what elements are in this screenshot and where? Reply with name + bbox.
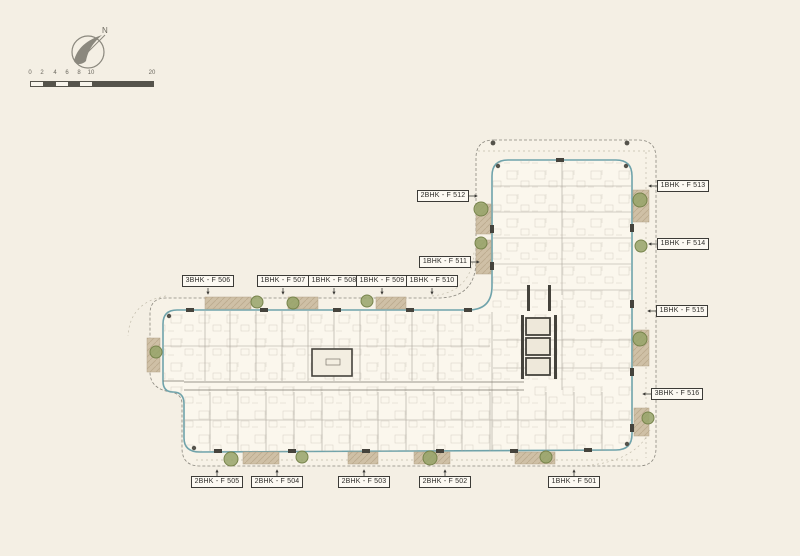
unit-label-f513: 1BHK - F 513 [657, 180, 709, 192]
scale-tick: 20 [149, 70, 156, 76]
unit-label-f504: 2BHK - F 504 [251, 476, 303, 488]
scale-tick: 2 [40, 70, 43, 76]
unit-label-f506: 3BHK - F 506 [182, 275, 234, 287]
unit-label-f514: 1BHK - F 514 [657, 238, 709, 250]
unit-label-f507: 1BHK - F 507 [257, 275, 309, 287]
unit-label-f501: 1BHK - F 501 [548, 476, 600, 488]
unit-label-f502: 2BHK - F 502 [419, 476, 471, 488]
scale-tick: 4 [53, 70, 56, 76]
scale-tick: 6 [65, 70, 68, 76]
unit-label-f512: 2BHK - F 512 [417, 190, 469, 202]
stair-core [312, 349, 352, 376]
unit-label-f508: 1BHK - F 508 [308, 275, 360, 287]
scale-bar: 0 2 4 6 8 10 20 [30, 70, 160, 92]
unit-label-f511: 1BHK - F 511 [419, 256, 471, 268]
scale-bar-rule [30, 81, 154, 87]
compass-north-label: N [102, 26, 108, 35]
scale-tick: 10 [88, 70, 95, 76]
unit-label-f505: 2BHK - F 505 [191, 476, 243, 488]
unit-label-f503: 2BHK - F 503 [338, 476, 390, 488]
scale-tick: 8 [77, 70, 80, 76]
unit-label-f515: 1BHK - F 515 [656, 305, 708, 317]
unit-label-f509: 1BHK - F 509 [356, 275, 408, 287]
floor-plan-page: N 0 2 4 6 8 10 20 2BHK - F 512 1BHK - F … [0, 0, 800, 556]
north-arrow-icon [72, 35, 105, 68]
scale-tick: 0 [28, 70, 31, 76]
unit-label-f516: 3BHK - F 516 [651, 388, 703, 400]
unit-label-f510: 1BHK - F 510 [406, 275, 458, 287]
